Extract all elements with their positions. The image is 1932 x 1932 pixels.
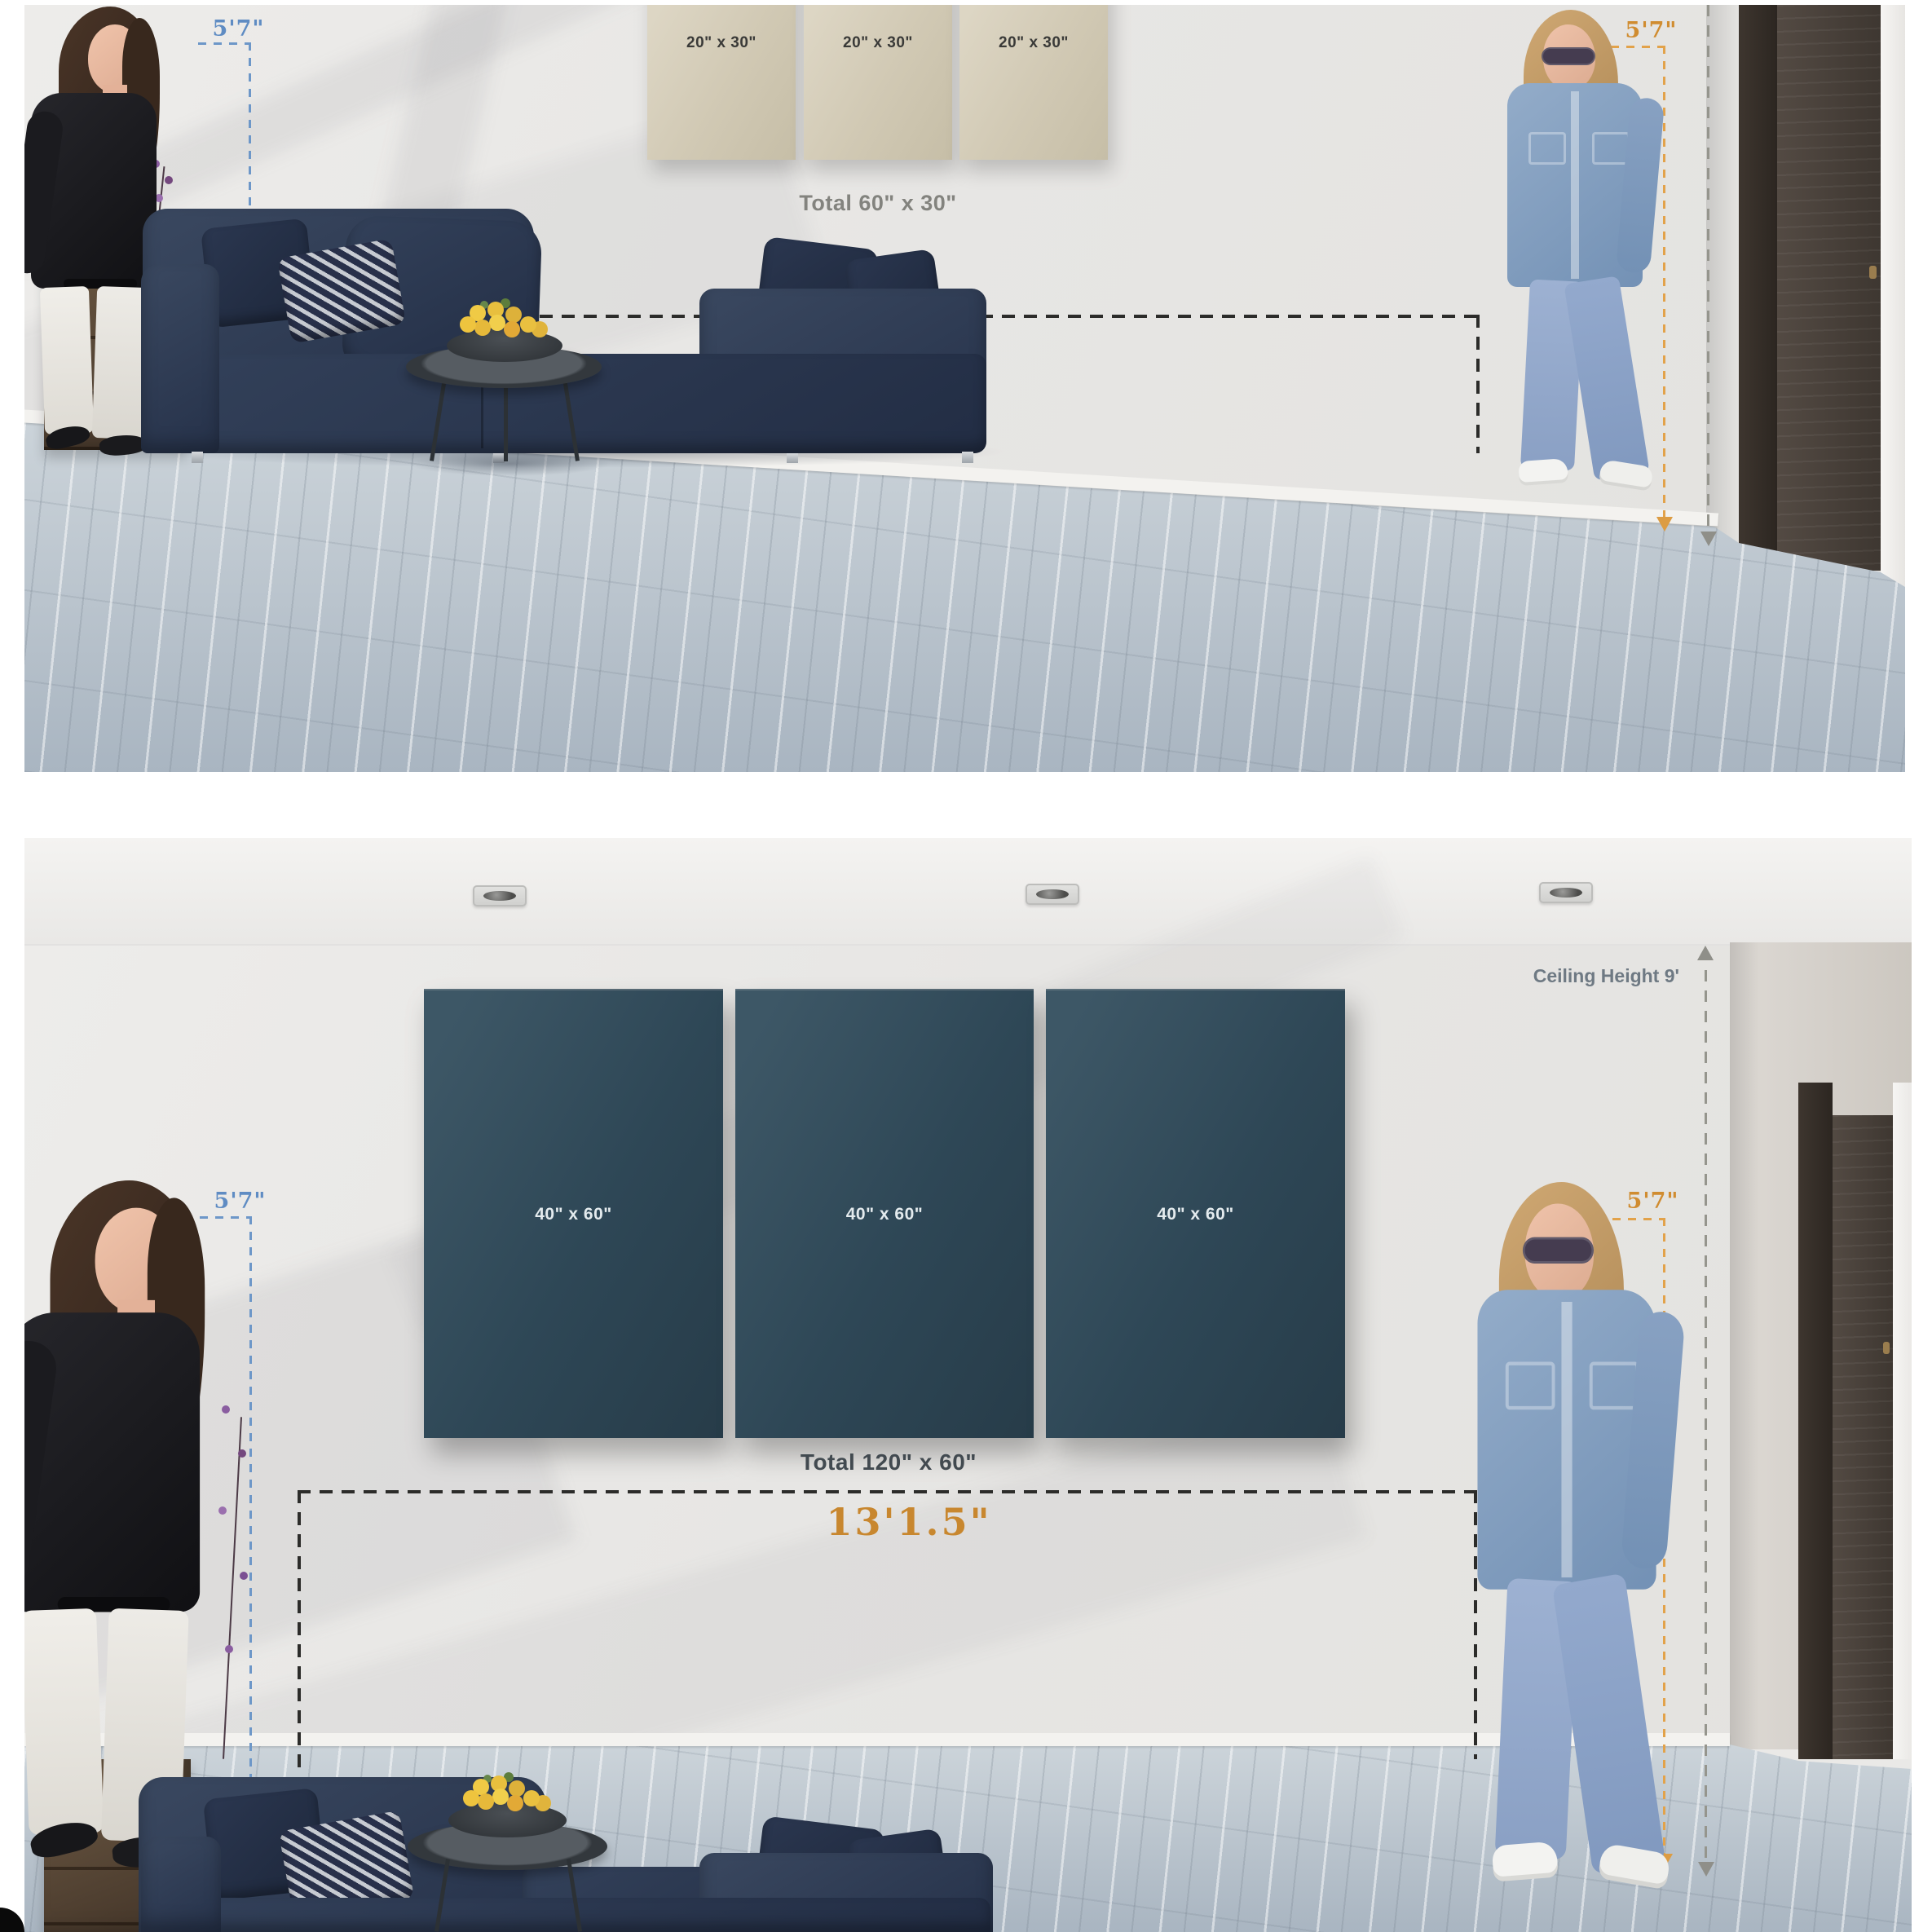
ceiling-spotlight [473,885,527,906]
person-right [1496,10,1667,487]
sneaker [1492,1841,1558,1877]
canvas-panel: 40" x 60" [735,989,1034,1438]
person-left [24,1180,237,1879]
door-handle [1883,1342,1890,1354]
wall-corner [1730,942,1759,1749]
ceiling-height-label: Ceiling Height 9' [1459,965,1679,987]
door-trim [1893,1083,1912,1759]
spotlight-lens [1036,889,1069,899]
door-handle [1869,266,1877,279]
sofa-leg [787,453,798,463]
fruit [460,316,476,333]
bottom-room-photo: 40" x 60" 40" x 60" 40" x 60" Total 120"… [24,838,1912,1932]
measure-line-left [298,1490,301,1771]
arrow-up-icon [1697,946,1714,960]
door-frame [1739,5,1777,567]
canvas-size-label: 20" x 30" [843,34,913,52]
door [1777,5,1881,571]
sunglasses [1523,1237,1594,1264]
jacket-pocket [1590,1362,1639,1410]
jacket-pocket [1506,1362,1555,1410]
canvas-panel: 20" x 30" [804,5,952,160]
sofa-armrest [141,264,219,453]
total-size-label: Total 120" x 60" [726,1449,1052,1475]
fruit-bowl [447,329,562,362]
measure-line-right [1476,315,1480,453]
sneaker [1518,458,1568,483]
ceiling-spotlight [1539,882,1593,903]
canvas-panel: 20" x 30" [959,5,1108,160]
canvas-panel: 40" x 60" [1046,989,1345,1438]
arrow-down-icon [1698,1862,1714,1877]
table-leg [504,380,508,461]
canvas-size-label: 40" x 60" [1157,1205,1233,1224]
canvas-size-label: 20" x 30" [686,34,756,52]
jacket-pocket [1592,132,1630,165]
canvas-panel: 20" x 30" [647,5,796,160]
ceiling-height-line [1707,5,1709,533]
table-shadow [408,452,611,476]
door [1833,1115,1893,1759]
white-pants [24,1608,104,1835]
sofa-leg [192,452,203,463]
fruit [463,1790,479,1806]
sofa-leg [962,452,973,463]
fruit-bowl [448,1803,567,1837]
jacket-placket [1571,91,1579,279]
person-right [1462,1182,1688,1883]
white-pants [40,286,94,434]
divider-band: TOTAL 120" x 60" [0,772,1932,838]
total-size-label: Total 60" x 30" [715,191,1041,216]
jacket-pocket [1528,132,1566,165]
spotlight-lens [1550,888,1582,898]
measure-line-horizontal [298,1490,1477,1493]
sofa-width-label: 13'1.5" [787,1500,1031,1544]
sofa-seat [147,1898,990,1932]
spotlight-lens [483,891,516,901]
size-guide-image: 20" x 30" 20" x 30" 20" x 30" Total 60" … [0,0,1932,1932]
wall-corner [1706,5,1739,576]
sofa-armrest [141,1837,221,1932]
door-frame [1798,1083,1833,1759]
canvas-panel: 40" x 60" [424,989,723,1438]
height-line-left [198,42,251,45]
top-room-photo: 20" x 30" 20" x 30" 20" x 30" Total 60" … [24,5,1905,772]
ceiling-height-line [1705,970,1707,1864]
person-height-label-left: 5'7" [179,16,298,42]
canvas-size-label: 40" x 60" [846,1205,923,1224]
canvas-size-label: 20" x 30" [999,34,1069,52]
jacket-placket [1561,1302,1572,1577]
arrow-down-icon [1656,517,1673,532]
ceiling [24,838,1912,946]
cropped-logo-mark [0,1908,24,1932]
door-trim [1881,5,1905,587]
ceiling-spotlight [1026,884,1079,905]
sunglasses [1542,47,1595,65]
arrow-down-icon [1700,532,1717,546]
canvas-size-label: 40" x 60" [535,1205,611,1224]
